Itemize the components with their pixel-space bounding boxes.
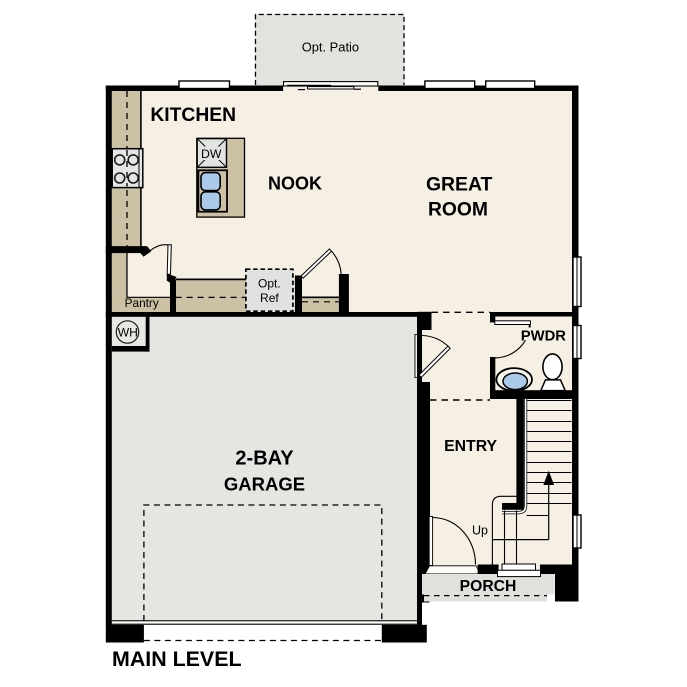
- svg-text:2-BAY: 2-BAY: [235, 447, 294, 469]
- svg-text:Pantry: Pantry: [125, 296, 159, 310]
- svg-text:MAIN LEVEL: MAIN LEVEL: [112, 647, 242, 671]
- svg-text:ENTRY: ENTRY: [444, 438, 497, 455]
- svg-text:PWDR: PWDR: [521, 329, 567, 345]
- svg-text:Opt. Patio: Opt. Patio: [302, 40, 359, 55]
- svg-text:DW: DW: [201, 147, 222, 161]
- svg-text:WH: WH: [118, 325, 138, 339]
- svg-text:Ref: Ref: [260, 291, 279, 305]
- svg-text:GARAGE: GARAGE: [224, 473, 305, 494]
- svg-text:GREAT: GREAT: [426, 174, 493, 196]
- svg-text:NOOK: NOOK: [268, 174, 322, 194]
- svg-text:Up: Up: [472, 524, 488, 538]
- svg-text:KITCHEN: KITCHEN: [150, 105, 236, 126]
- svg-text:PORCH: PORCH: [460, 578, 517, 595]
- svg-text:Opt.: Opt.: [258, 277, 281, 291]
- svg-text:ROOM: ROOM: [428, 200, 488, 221]
